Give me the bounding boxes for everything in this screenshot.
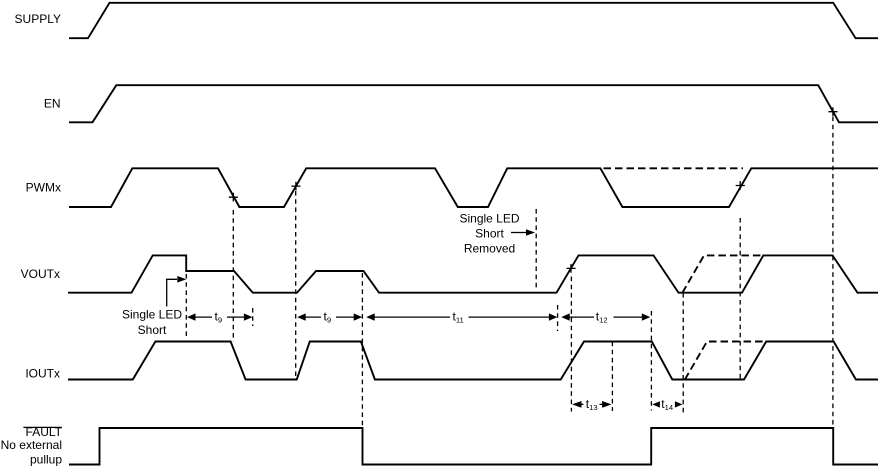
svg-text:t9: t9 xyxy=(215,310,223,325)
svg-text:pullup: pullup xyxy=(30,452,62,466)
svg-text:Single LED: Single LED xyxy=(122,308,182,322)
svg-text:t14: t14 xyxy=(661,397,673,412)
svg-text:VOUTx: VOUTx xyxy=(21,267,60,281)
svg-text:Short: Short xyxy=(475,226,504,240)
svg-text:Single LED: Single LED xyxy=(459,211,519,225)
svg-text:Removed: Removed xyxy=(464,241,515,255)
svg-text:SUPPLY: SUPPLY xyxy=(15,12,61,26)
svg-text:t12: t12 xyxy=(596,310,608,325)
svg-text:t11: t11 xyxy=(453,310,464,325)
svg-text:t9: t9 xyxy=(324,310,332,325)
svg-text:EN: EN xyxy=(44,96,61,110)
svg-text:No external: No external xyxy=(1,438,62,452)
svg-text:t13: t13 xyxy=(586,397,598,412)
svg-text:Short: Short xyxy=(138,323,167,337)
svg-text:IOUTx: IOUTx xyxy=(25,367,60,381)
svg-text:PWMx: PWMx xyxy=(26,181,61,195)
